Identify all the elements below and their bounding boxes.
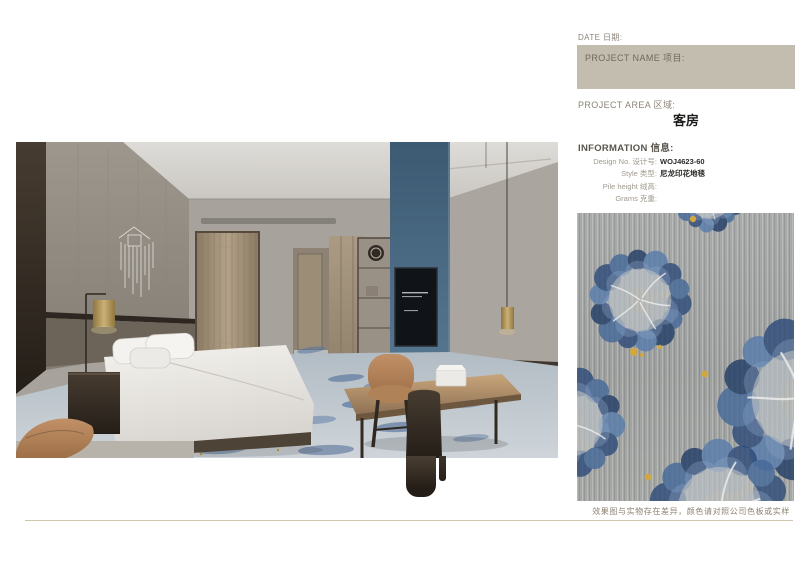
tv [395, 268, 437, 346]
field-label: Design No. 设计号: [577, 156, 657, 168]
floor-lamp [406, 390, 442, 458]
project-name-label: PROJECT NAME 项目: [585, 51, 685, 64]
flower [590, 250, 692, 352]
carpet-sample-image [577, 213, 794, 501]
field-label: Style 类型: [577, 168, 657, 180]
information-fields: Design No. 设计号: WOJ4623-60 Style 类型: 尼龙印… [577, 156, 795, 206]
carpet-sample-svg [577, 213, 794, 501]
left-wood-panel [16, 142, 46, 394]
field-style: Style 类型: 尼龙印花地毯 [577, 168, 795, 180]
floor-lamp-popout [406, 456, 436, 497]
information-title: INFORMATION 信息: [578, 140, 674, 154]
field-value: WOJ4623-60 [660, 156, 795, 168]
project-area-value: 客房 [577, 110, 795, 129]
field-value [660, 181, 795, 193]
project-name-box: PROJECT NAME 项目: [577, 45, 795, 89]
field-value [660, 193, 795, 205]
shelving-unit [358, 238, 394, 358]
field-grams: Grams 克重: [577, 193, 795, 205]
glass-partition [196, 232, 259, 354]
entry-corridor [293, 248, 329, 356]
field-value: 尼龙印花地毯 [660, 168, 795, 180]
flower [577, 354, 639, 494]
field-label: Grams 克重: [577, 193, 657, 205]
footer-divider [25, 520, 793, 521]
date-label: DATE 日期: [578, 32, 622, 43]
field-design-no: Design No. 设计号: WOJ4623-60 [577, 156, 795, 168]
field-pile-height: Pile height 绒高: [577, 181, 795, 193]
flower [668, 213, 752, 240]
room-rendering-svg [16, 142, 558, 458]
field-label: Pile height 绒高: [577, 181, 657, 193]
design-spec-sheet: DATE 日期: PROJECT NAME 项目: PROJECT AREA 区… [0, 0, 800, 565]
carpet-flowers [577, 213, 794, 501]
disclaimer-note: 效果图与实物存在差异，颜色请对照公司色板或实样 [592, 506, 790, 517]
chair-leg-popout [439, 456, 446, 481]
room-rendering-image [16, 142, 558, 458]
ceiling-vent [201, 218, 336, 224]
desk-box [436, 365, 466, 386]
